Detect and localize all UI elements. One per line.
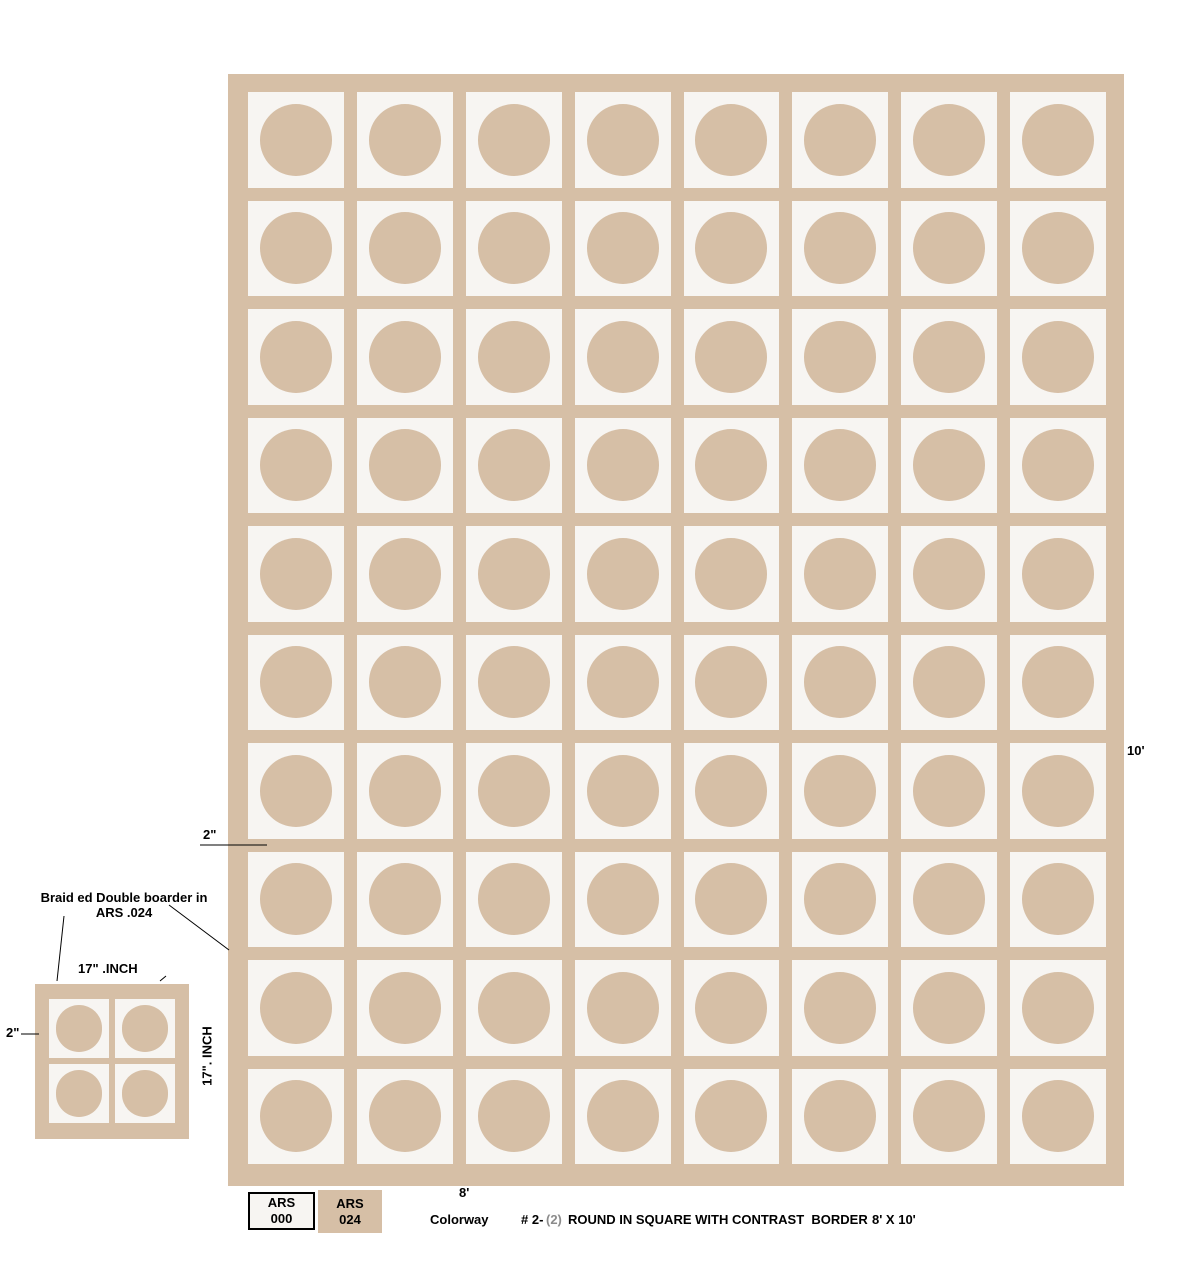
circle-motif xyxy=(369,212,441,284)
circle-motif xyxy=(1022,538,1094,610)
circle-motif xyxy=(804,212,876,284)
circle-motif xyxy=(804,1080,876,1152)
rug-cell xyxy=(684,92,780,188)
circle-motif xyxy=(260,212,332,284)
circle-motif xyxy=(587,321,659,393)
circle-motif xyxy=(913,1080,985,1152)
legend-code: ARS xyxy=(336,1196,363,1212)
rug-cell xyxy=(792,852,888,948)
circle-motif xyxy=(478,538,550,610)
rug-cell xyxy=(575,201,671,297)
circle-motif xyxy=(804,972,876,1044)
rug-cell xyxy=(792,635,888,731)
circle-motif xyxy=(695,321,767,393)
repeat-swatch-drawing xyxy=(35,984,189,1139)
rug-cell xyxy=(684,309,780,405)
rug-cell xyxy=(357,960,453,1056)
circle-motif xyxy=(369,538,441,610)
legend-number: 000 xyxy=(271,1211,293,1227)
circle-motif xyxy=(695,863,767,935)
circle-motif xyxy=(913,321,985,393)
rug-cell xyxy=(792,418,888,514)
circle-motif xyxy=(1022,212,1094,284)
rug-cell xyxy=(684,201,780,297)
border-width-label-left: 2" xyxy=(6,1025,19,1040)
rug-cell xyxy=(248,743,344,839)
circle-motif xyxy=(587,212,659,284)
circle-motif xyxy=(695,538,767,610)
circle-motif xyxy=(260,538,332,610)
rug-cell xyxy=(1010,526,1106,622)
circle-motif xyxy=(913,646,985,718)
rug-cell xyxy=(901,92,997,188)
legend-swatch-ars-000: ARS 000 xyxy=(248,1192,315,1230)
circle-motif xyxy=(260,646,332,718)
rug-cell xyxy=(684,526,780,622)
circle-motif xyxy=(122,1070,169,1116)
rug-cell xyxy=(357,418,453,514)
circle-motif xyxy=(369,321,441,393)
rug-cell xyxy=(466,635,562,731)
circle-motif xyxy=(913,538,985,610)
circle-motif xyxy=(695,646,767,718)
rug-cell xyxy=(901,743,997,839)
circle-motif xyxy=(260,1080,332,1152)
circle-motif xyxy=(478,104,550,176)
rug-cell xyxy=(248,960,344,1056)
circle-motif xyxy=(1022,646,1094,718)
tick-mark xyxy=(160,976,166,981)
rug-cell xyxy=(1010,635,1106,731)
design-title: ROUND IN SQUARE WITH CONTRAST BORDER xyxy=(568,1212,868,1227)
circle-motif xyxy=(804,646,876,718)
circle-motif xyxy=(1022,429,1094,501)
rug-cell xyxy=(248,852,344,948)
rug-cell xyxy=(466,743,562,839)
rug-cell xyxy=(575,92,671,188)
legend-code: ARS xyxy=(268,1195,295,1211)
rug-spec-sheet: Braid ed Double boarder in ARS .024 17" … xyxy=(0,0,1198,1261)
rug-cell xyxy=(248,92,344,188)
border-width-label-top: 2" xyxy=(203,827,216,842)
circle-motif xyxy=(587,538,659,610)
rug-cell xyxy=(792,960,888,1056)
rug-cell xyxy=(248,201,344,297)
circle-motif xyxy=(369,429,441,501)
circle-motif xyxy=(587,104,659,176)
rug-cell xyxy=(901,1069,997,1165)
circle-motif xyxy=(122,1005,169,1051)
rug-cell xyxy=(248,635,344,731)
repeat-swatch-grid xyxy=(49,999,175,1123)
circle-motif xyxy=(587,863,659,935)
circle-motif xyxy=(695,972,767,1044)
rug-cell xyxy=(684,852,780,948)
circle-motif xyxy=(913,755,985,827)
circle-motif xyxy=(369,972,441,1044)
circle-motif xyxy=(913,104,985,176)
colorway-number: # 2- xyxy=(521,1212,543,1227)
circle-motif xyxy=(1022,1080,1094,1152)
rug-cell xyxy=(1010,960,1106,1056)
rug-cell xyxy=(357,526,453,622)
circle-motif xyxy=(260,321,332,393)
circle-motif xyxy=(260,972,332,1044)
circle-motif xyxy=(695,104,767,176)
rug-cell xyxy=(466,309,562,405)
rug-cell xyxy=(248,309,344,405)
circle-motif xyxy=(478,972,550,1044)
rug-cell xyxy=(1010,1069,1106,1165)
circle-motif xyxy=(1022,972,1094,1044)
circle-motif xyxy=(1022,104,1094,176)
rug-cell xyxy=(792,201,888,297)
circle-motif xyxy=(260,863,332,935)
rug-cell xyxy=(357,201,453,297)
swatch-height-label: 17". INCH xyxy=(200,1026,215,1086)
rug-cell xyxy=(248,418,344,514)
circle-motif xyxy=(1022,755,1094,827)
circle-motif xyxy=(695,755,767,827)
rug-cell xyxy=(357,309,453,405)
rug-cell xyxy=(575,852,671,948)
rug-cell xyxy=(684,960,780,1056)
rug-cell xyxy=(357,635,453,731)
rug-cell xyxy=(901,418,997,514)
colorway-label: Colorway xyxy=(430,1212,489,1227)
rug-cell xyxy=(901,201,997,297)
circle-motif xyxy=(804,755,876,827)
circle-motif xyxy=(260,429,332,501)
circle-motif xyxy=(478,1080,550,1152)
rug-cell xyxy=(684,1069,780,1165)
legend-number: 024 xyxy=(339,1212,361,1228)
rug-cell xyxy=(684,418,780,514)
swatch-cell xyxy=(115,1064,175,1123)
rug-cell xyxy=(792,1069,888,1165)
rug-height-label: 10' xyxy=(1127,743,1145,758)
circle-motif xyxy=(804,538,876,610)
circle-motif xyxy=(804,429,876,501)
rug-cell xyxy=(248,526,344,622)
rug-cell xyxy=(792,309,888,405)
legend-swatch-ars-024: ARS 024 xyxy=(318,1190,382,1233)
circle-motif xyxy=(260,104,332,176)
rug-cell xyxy=(466,201,562,297)
circle-motif xyxy=(587,1080,659,1152)
leader-line-to-swatch xyxy=(57,916,64,981)
circle-motif xyxy=(478,646,550,718)
circle-motif xyxy=(260,755,332,827)
rug-cell xyxy=(575,309,671,405)
rug-cell xyxy=(357,1069,453,1165)
rug-cell xyxy=(792,526,888,622)
circle-motif xyxy=(478,429,550,501)
rug-cell xyxy=(901,852,997,948)
border-note-line1: Braid ed Double boarder in xyxy=(24,890,224,905)
rug-cell xyxy=(684,635,780,731)
rug-cell xyxy=(466,1069,562,1165)
circle-motif xyxy=(478,321,550,393)
rug-drawing xyxy=(228,74,1124,1186)
circle-motif xyxy=(56,1070,103,1116)
circle-motif xyxy=(913,863,985,935)
circle-motif xyxy=(804,321,876,393)
rug-cell xyxy=(466,526,562,622)
rug-cell xyxy=(466,852,562,948)
rug-cell xyxy=(575,1069,671,1165)
circle-motif xyxy=(1022,321,1094,393)
rug-cell xyxy=(684,743,780,839)
circle-motif xyxy=(695,1080,767,1152)
circle-motif xyxy=(478,863,550,935)
circle-motif xyxy=(369,646,441,718)
rug-cell xyxy=(357,743,453,839)
circle-motif xyxy=(369,1080,441,1152)
border-note: Braid ed Double boarder in ARS .024 xyxy=(24,890,224,920)
rug-cell xyxy=(466,418,562,514)
rug-cell xyxy=(248,1069,344,1165)
circle-motif xyxy=(804,863,876,935)
circle-motif xyxy=(369,863,441,935)
circle-motif xyxy=(56,1005,103,1051)
rug-cell xyxy=(901,309,997,405)
circle-motif xyxy=(1022,863,1094,935)
circle-motif xyxy=(587,646,659,718)
swatch-cell xyxy=(49,999,109,1058)
rug-cell xyxy=(1010,418,1106,514)
circle-motif xyxy=(369,755,441,827)
rug-cell xyxy=(1010,852,1106,948)
circle-motif xyxy=(369,104,441,176)
rug-cell xyxy=(466,92,562,188)
rug-cell xyxy=(466,960,562,1056)
rug-width-label: 8' xyxy=(459,1185,469,1200)
rug-cell xyxy=(792,92,888,188)
rug-cell xyxy=(1010,92,1106,188)
circle-motif xyxy=(478,212,550,284)
swatch-cell xyxy=(115,999,175,1058)
circle-motif xyxy=(587,972,659,1044)
rug-cell xyxy=(575,743,671,839)
circle-motif xyxy=(695,429,767,501)
rug-cell xyxy=(1010,309,1106,405)
circle-motif xyxy=(587,429,659,501)
rug-cell xyxy=(792,743,888,839)
rug-cell xyxy=(901,526,997,622)
circle-motif xyxy=(587,755,659,827)
rug-cell xyxy=(575,526,671,622)
rug-cell xyxy=(575,418,671,514)
rug-cell xyxy=(901,960,997,1056)
rug-size-label: 8' X 10' xyxy=(872,1212,916,1227)
rug-cell xyxy=(1010,743,1106,839)
rug-cell xyxy=(1010,201,1106,297)
border-note-line2: ARS .024 xyxy=(24,905,224,920)
rug-cell xyxy=(901,635,997,731)
circle-motif xyxy=(478,755,550,827)
colorway-paren: (2) xyxy=(546,1212,562,1227)
rug-cell xyxy=(575,635,671,731)
rug-cell xyxy=(357,852,453,948)
swatch-cell xyxy=(49,1064,109,1123)
rug-cell xyxy=(357,92,453,188)
rug-grid xyxy=(248,92,1106,1164)
circle-motif xyxy=(913,972,985,1044)
circle-motif xyxy=(804,104,876,176)
circle-motif xyxy=(913,212,985,284)
circle-motif xyxy=(913,429,985,501)
rug-cell xyxy=(575,960,671,1056)
circle-motif xyxy=(695,212,767,284)
swatch-width-label: 17" .INCH xyxy=(78,961,138,976)
